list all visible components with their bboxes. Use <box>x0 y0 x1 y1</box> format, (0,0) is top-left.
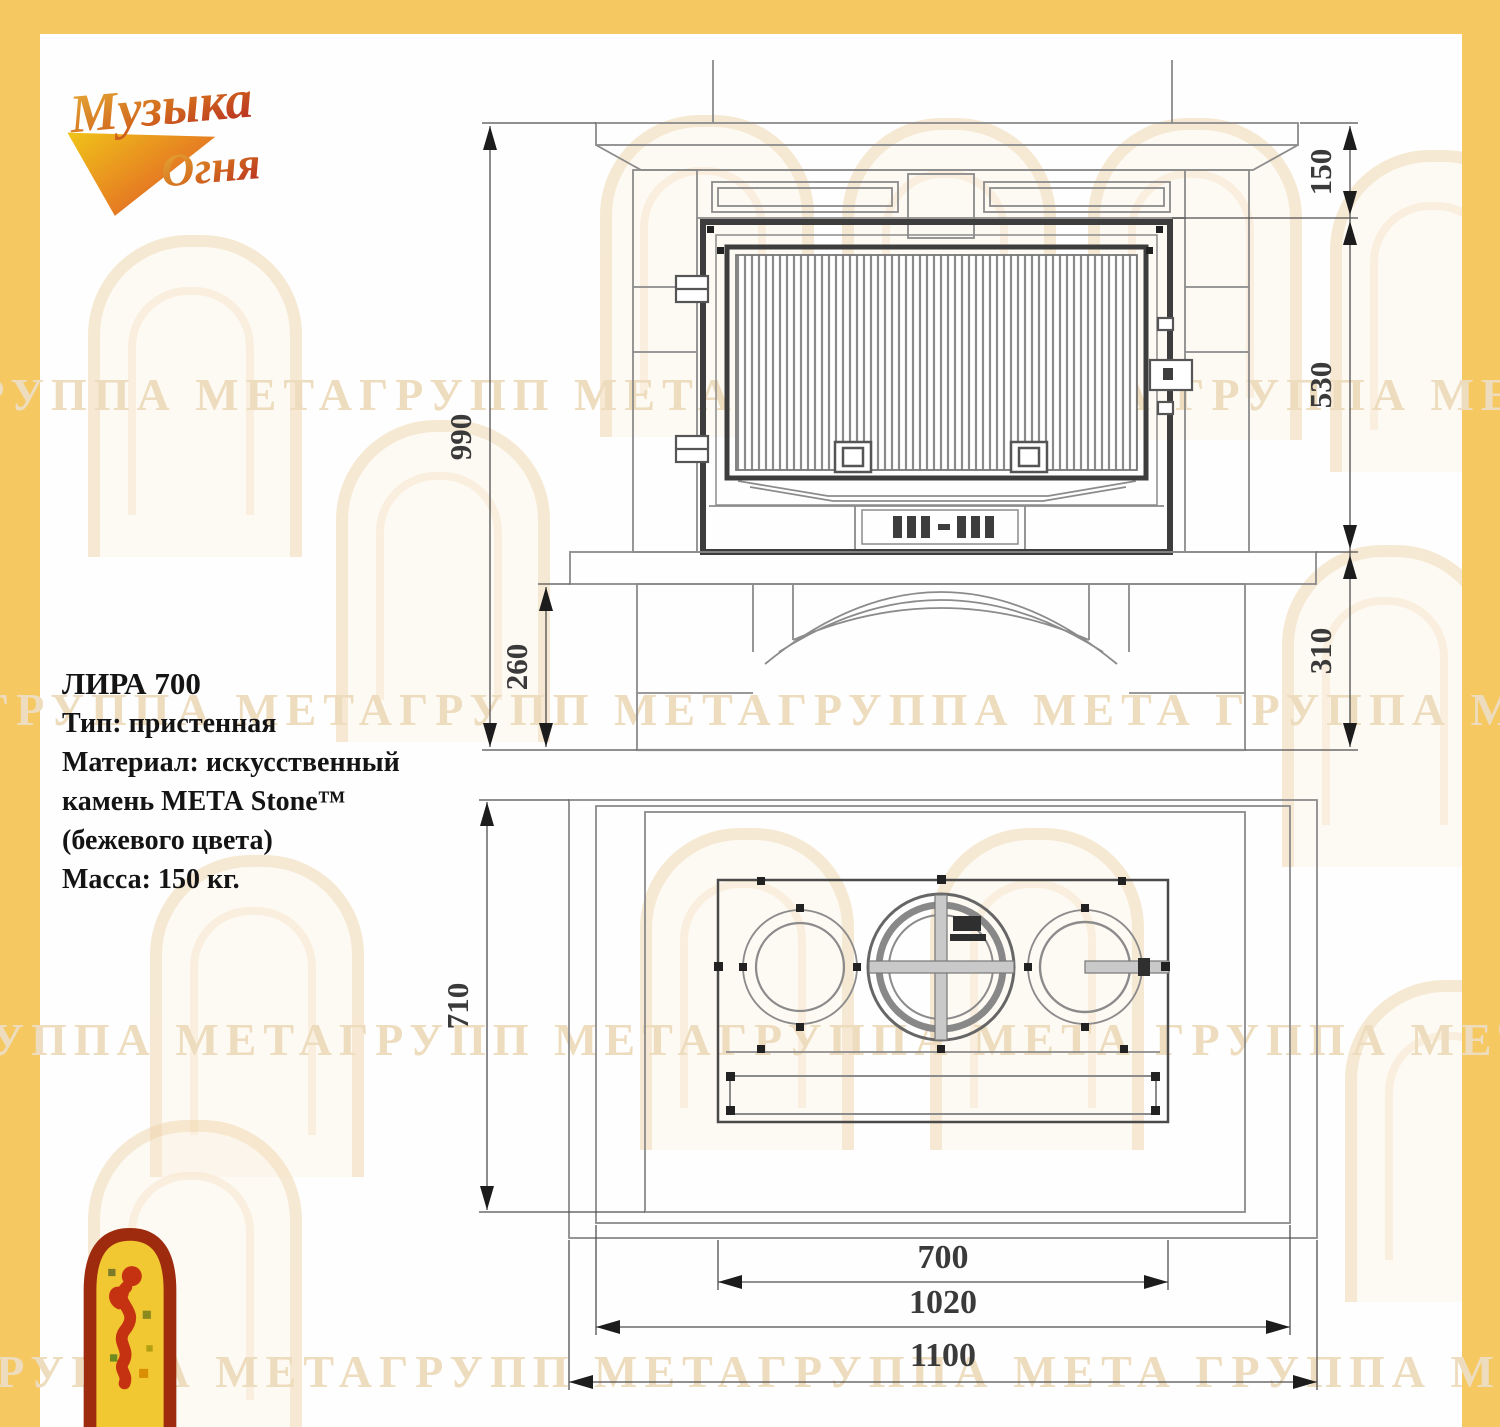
logo-text-line2: Огня <box>159 137 263 196</box>
door-ribs <box>736 255 1137 470</box>
plan-unit-band <box>730 1076 1156 1114</box>
flue-lines <box>713 60 1172 123</box>
hearth-slab <box>570 552 1316 584</box>
footer-arch-logo <box>70 1218 190 1427</box>
spec-line-material2: камень МЕТА Stone™ <box>62 782 400 821</box>
dim-label-700: 700 <box>918 1239 969 1276</box>
damper-handle <box>950 916 986 941</box>
frieze-panel-left <box>712 182 898 212</box>
frieze-panel-right <box>984 182 1170 212</box>
right-opening-rod <box>1085 961 1169 973</box>
mantel-bevel <box>596 145 1298 170</box>
mantel-shelf <box>596 123 1298 145</box>
spec-line-mass: Масса: 150 кг. <box>62 860 400 899</box>
dim-label-990: 990 <box>443 414 478 461</box>
spec-line-type: Тип: пристенная <box>62 704 400 743</box>
logo-text-line1: Музыка <box>66 69 254 145</box>
dim-label-1020: 1020 <box>909 1284 977 1321</box>
arch-springs <box>753 584 1129 652</box>
spec-line-color: (бежевого цвета) <box>62 821 400 860</box>
dim-label-310: 310 <box>1303 628 1338 675</box>
frieze-panel-right-inner <box>990 188 1164 206</box>
top-plan-view <box>569 800 1317 1238</box>
ash-lip <box>738 481 1136 501</box>
dim-label-150: 150 <box>1303 149 1338 196</box>
spec-sheet-page: ГРУППА МЕТАГРУПП МЕТАГРУППА МЕТА ГРУППА … <box>0 0 1500 1427</box>
dim-label-710: 710 <box>440 983 475 1030</box>
product-specs: ЛИРА 700 Тип: пристенная Материал: искус… <box>62 664 400 899</box>
spec-line-material: Материал: искусственный <box>62 743 400 782</box>
plan-left-opening-inner <box>756 923 844 1011</box>
keystone <box>908 174 974 238</box>
vent-slots <box>893 516 994 538</box>
product-title: ЛИРА 700 <box>62 664 400 704</box>
frame-corner-marks <box>707 226 1163 254</box>
dim-label-1100: 1100 <box>910 1337 976 1374</box>
brand-logo: Музыка Огня <box>50 44 340 229</box>
front-elevation-view <box>570 60 1316 750</box>
dim-label-260: 260 <box>499 644 534 691</box>
base-arch <box>765 592 1117 664</box>
plan-left-opening-outer <box>743 910 857 1024</box>
dim-label-530: 530 <box>1303 362 1338 409</box>
right-rod-stop <box>1138 958 1150 976</box>
frieze-panel-left-inner <box>718 188 892 206</box>
